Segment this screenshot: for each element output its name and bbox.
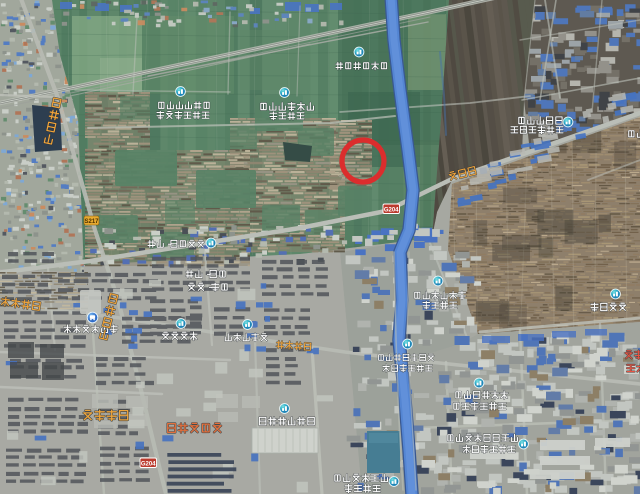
svg-text:S217: S217 (84, 219, 99, 225)
svg-text:G204: G204 (384, 207, 399, 213)
svg-text:G204: G204 (141, 461, 156, 467)
